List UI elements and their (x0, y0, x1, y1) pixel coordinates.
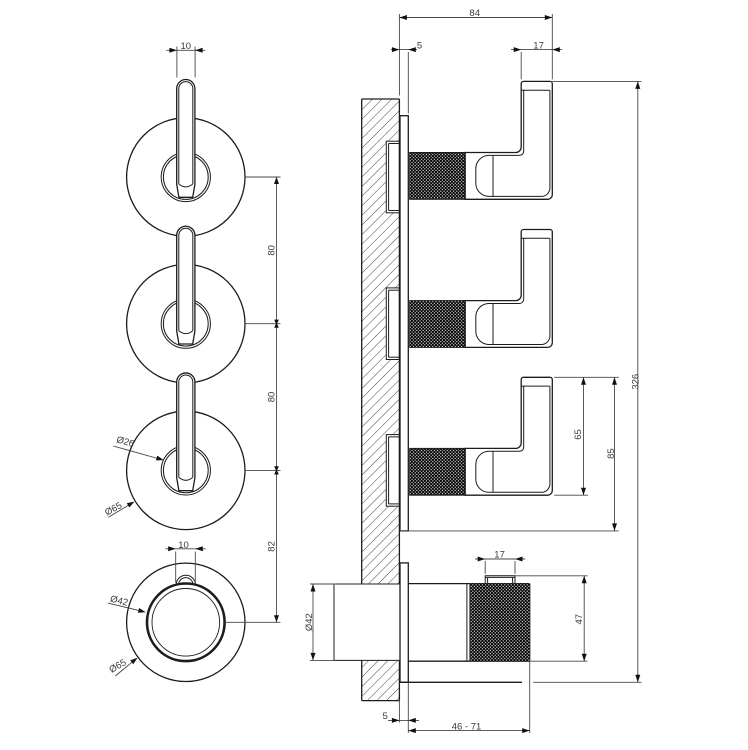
svg-text:80: 80 (266, 392, 277, 403)
svg-text:85: 85 (606, 448, 617, 459)
svg-text:47: 47 (574, 614, 585, 625)
svg-text:17: 17 (533, 41, 544, 52)
svg-text:10: 10 (181, 41, 192, 52)
svg-text:17: 17 (494, 550, 505, 561)
svg-text:10: 10 (178, 540, 189, 551)
svg-text:65: 65 (573, 429, 584, 440)
svg-text:84: 84 (469, 8, 480, 19)
svg-text:80: 80 (266, 245, 277, 256)
svg-text:82: 82 (266, 541, 277, 552)
svg-text:5: 5 (417, 41, 422, 52)
svg-text:5: 5 (382, 711, 387, 722)
svg-text:Ø42: Ø42 (304, 613, 315, 631)
svg-text:326: 326 (631, 374, 642, 390)
svg-text:46 - 71: 46 - 71 (452, 722, 482, 733)
